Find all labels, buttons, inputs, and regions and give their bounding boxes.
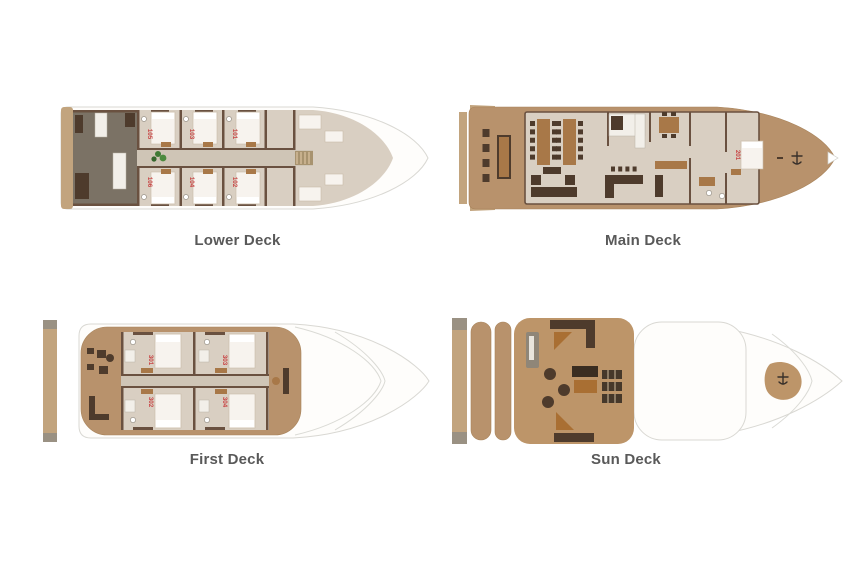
first-deck-figure: 301 303 302 304 First Deck <box>43 318 433 468</box>
mid-deck-white <box>634 322 746 440</box>
lower-deck-label: Lower Deck <box>55 232 432 249</box>
stern-slab-cap-bottom <box>43 433 57 442</box>
cabin-number-301: 301 <box>147 355 154 366</box>
stern-platform <box>61 107 73 209</box>
main-deck-label: Main Deck <box>459 232 841 249</box>
dining-tables <box>533 119 581 165</box>
stern-slab-cap-top <box>43 320 57 329</box>
bow-cleat <box>777 157 783 159</box>
stern-slab-cap-top <box>452 318 467 330</box>
sun-deck-drawing <box>452 318 844 444</box>
stern-step-2 <box>495 322 511 440</box>
first-deck-label: First Deck <box>43 451 433 468</box>
sun-loungers <box>602 370 622 403</box>
swim-platform <box>459 112 467 204</box>
main-deck-figure: 201 Main Deck <box>459 103 841 249</box>
cabin-number-304: 304 <box>221 397 228 408</box>
cabin-number-101: 101 <box>231 129 238 140</box>
lower-deck-figure: 105 103 101 106 104 102 Lower Deck <box>55 103 432 249</box>
cabin-number-303: 303 <box>221 355 228 366</box>
stern-slab-cap-bottom <box>452 432 467 444</box>
cabin-number-201: 201 <box>734 150 741 161</box>
crew-engine-area <box>73 110 137 206</box>
cabin-number-106: 106 <box>146 177 153 188</box>
cabin-number-302: 302 <box>147 397 154 408</box>
sun-deck-label: Sun Deck <box>452 451 844 468</box>
stern-step-1 <box>471 322 491 440</box>
stairs <box>295 151 313 165</box>
stern-slab <box>43 320 57 442</box>
stairs <box>526 332 539 368</box>
cabin-number-105: 105 <box>146 129 153 140</box>
lower-deck-drawing: 105 103 101 106 104 102 <box>55 103 432 213</box>
stern-slab <box>452 318 467 444</box>
main-deck-drawing: 201 <box>459 103 841 213</box>
cabin-number-102: 102 <box>231 177 238 188</box>
corridor <box>121 376 269 386</box>
cabin-number-103: 103 <box>188 129 195 140</box>
sun-deck-figure: Sun Deck <box>452 318 844 468</box>
deck-plan-canvas: 105 103 101 106 104 102 Lower Deck <box>0 0 857 571</box>
cabin-number-104: 104 <box>188 177 195 188</box>
first-deck-drawing: 301 303 302 304 <box>43 318 433 444</box>
